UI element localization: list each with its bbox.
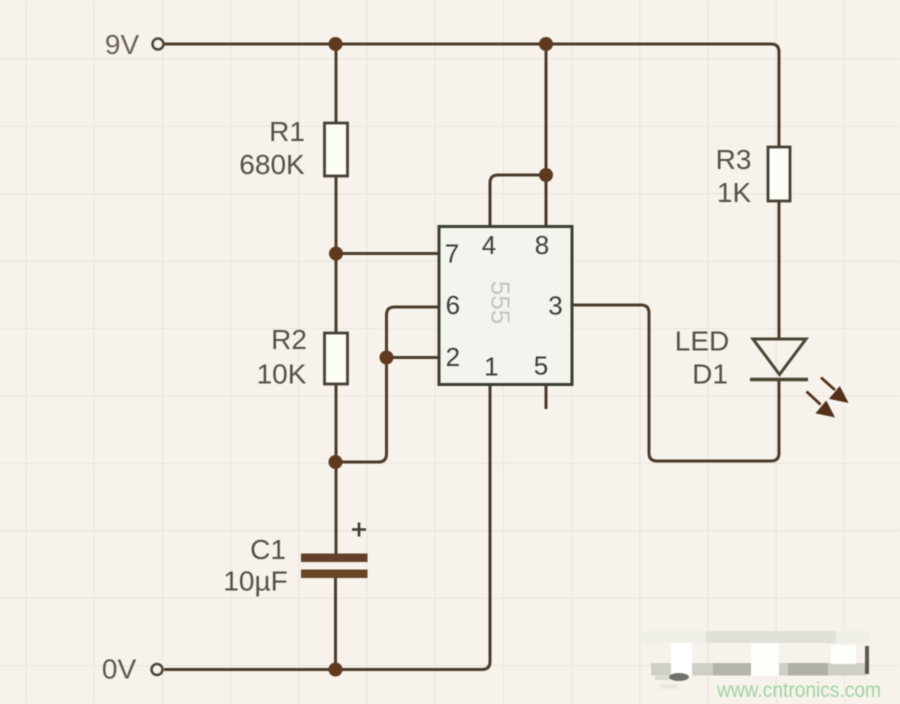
- svg-text:10K: 10K: [257, 359, 307, 390]
- svg-text:680K: 680K: [239, 149, 305, 180]
- svg-text:9V: 9V: [105, 29, 140, 60]
- svg-text:R3: R3: [716, 144, 752, 175]
- svg-text:0V: 0V: [102, 654, 137, 685]
- svg-text:1: 1: [484, 352, 498, 382]
- svg-text:D1: D1: [692, 359, 728, 390]
- svg-text:1K: 1K: [717, 177, 752, 208]
- svg-text:R1: R1: [269, 116, 305, 147]
- svg-text:LED: LED: [675, 326, 729, 357]
- svg-text:4: 4: [482, 230, 496, 260]
- svg-text:www.cntronics.com: www.cntronics.com: [716, 679, 881, 702]
- svg-text:555: 555: [486, 281, 516, 324]
- svg-text:6: 6: [446, 290, 460, 320]
- svg-text:C1: C1: [250, 534, 286, 565]
- svg-text:8: 8: [535, 230, 549, 260]
- svg-text:5: 5: [534, 351, 548, 381]
- svg-text:2: 2: [446, 342, 460, 372]
- svg-text:R2: R2: [271, 324, 307, 355]
- svg-text:3: 3: [548, 291, 562, 321]
- svg-text:7: 7: [445, 239, 459, 269]
- svg-text:10µF: 10µF: [223, 566, 287, 597]
